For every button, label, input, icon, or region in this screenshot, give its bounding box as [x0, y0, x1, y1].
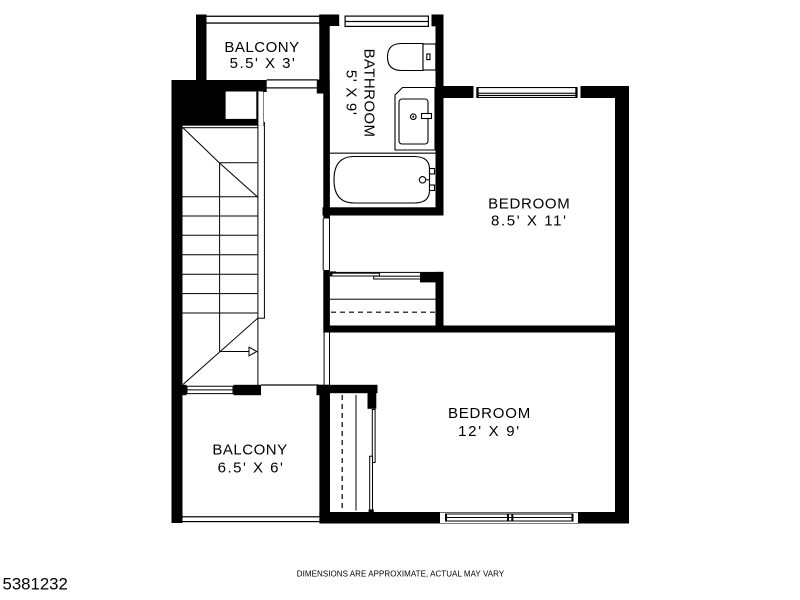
- svg-text:BALCONY: BALCONY: [224, 39, 299, 56]
- svg-text:8.5' X 11': 8.5' X 11': [491, 212, 568, 229]
- svg-text:BATHROOM: BATHROOM: [361, 49, 378, 138]
- svg-text:12' X 9': 12' X 9': [458, 423, 521, 440]
- svg-text:5.5' X 3': 5.5' X 3': [230, 55, 297, 72]
- svg-text:6.5' X 6': 6.5' X 6': [218, 460, 285, 477]
- svg-text:5381232: 5381232: [3, 575, 68, 594]
- svg-text:BALCONY: BALCONY: [212, 442, 287, 459]
- svg-text:DIMENSIONS ARE APPROXIMATE, AC: DIMENSIONS ARE APPROXIMATE, ACTUAL MAY V…: [297, 570, 505, 579]
- svg-text:BEDROOM: BEDROOM: [488, 195, 570, 212]
- svg-text:BEDROOM: BEDROOM: [448, 405, 531, 422]
- svg-text:5' X 9': 5' X 9': [343, 70, 360, 116]
